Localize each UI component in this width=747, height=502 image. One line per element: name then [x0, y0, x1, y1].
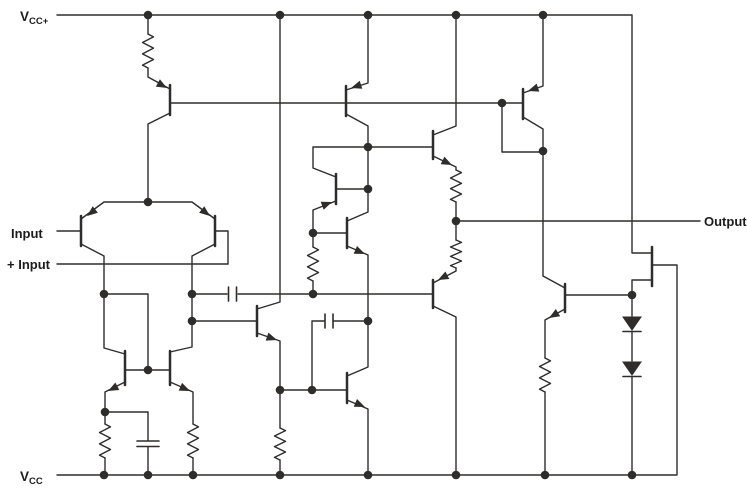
emitter-arrow: [354, 399, 365, 407]
emitter-arrow: [549, 309, 560, 318]
wire: [347, 246, 368, 376]
junction-dot: [364, 143, 373, 152]
op-amp-equivalent-schematic: VCC+Input+ InputOutputVCC: [0, 0, 747, 497]
wire: [543, 151, 565, 288]
resistor: [540, 358, 551, 392]
wire: [105, 412, 148, 441]
junction-dot: [628, 471, 637, 480]
resistor: [188, 424, 199, 458]
junction-dot: [308, 386, 317, 395]
wire: [257, 15, 280, 309]
wire: [433, 306, 456, 475]
junction-dot: [101, 408, 110, 417]
junction-dot: [144, 471, 153, 480]
output-label: Output: [704, 214, 747, 229]
junction-dot: [188, 290, 197, 299]
plus-input-label: + Input: [7, 257, 51, 272]
wire: [312, 321, 324, 390]
junction-dot: [364, 185, 373, 194]
junction-dot: [452, 217, 461, 226]
junction-dot: [276, 11, 285, 20]
junction-dot: [628, 291, 637, 300]
junction-dot: [144, 11, 153, 20]
emitter-arrow: [351, 81, 362, 89]
junction-dot: [309, 290, 318, 299]
resistor: [308, 247, 319, 281]
vcc-minus-label: VCC: [20, 469, 43, 487]
junction-dot: [364, 11, 373, 20]
junction-dot: [541, 471, 550, 480]
wire: [523, 117, 543, 151]
junction-dot: [452, 471, 461, 480]
vcc-plus-label: VCC+: [20, 9, 49, 27]
junction-dot: [276, 471, 285, 480]
resistor: [451, 170, 462, 202]
emitter-arrow: [354, 246, 365, 254]
junction-dot: [539, 11, 548, 20]
junction-dot: [364, 317, 373, 326]
junction-dot: [276, 386, 285, 395]
diode-triangle: [623, 317, 641, 330]
diode-triangle: [623, 362, 641, 375]
emitter-arrow: [321, 202, 332, 210]
emitter-arrow: [108, 383, 119, 392]
wire: [148, 113, 170, 202]
junction-dot: [189, 471, 198, 480]
wire: [104, 294, 125, 354]
wire: [523, 15, 543, 93]
junction-dot: [539, 147, 548, 156]
resistor: [451, 240, 462, 268]
junction-dot: [144, 366, 153, 375]
resistor: [100, 424, 111, 458]
wire: [215, 231, 228, 264]
wire: [433, 15, 456, 135]
wire: [346, 114, 368, 221]
emitter-arrow: [179, 383, 190, 391]
emitter-arrow: [438, 272, 449, 281]
wire: [346, 15, 368, 90]
junction-dot: [309, 229, 318, 238]
schematic-canvas: VCC+Input+ InputOutputVCC: [0, 0, 747, 497]
wire: [347, 400, 368, 475]
emitter-arrow: [528, 84, 539, 92]
input-label: Input: [11, 226, 43, 241]
junction-dot: [364, 471, 373, 480]
wire: [257, 333, 280, 390]
resistor: [275, 428, 286, 460]
emitter-arrow: [156, 79, 167, 88]
wire: [313, 147, 368, 177]
junction-dot: [188, 317, 197, 326]
emitter-arrow: [441, 157, 452, 165]
junction-dot: [452, 11, 461, 20]
resistor: [143, 34, 154, 68]
emitter-arrow: [266, 333, 277, 341]
junction-dot: [498, 99, 507, 108]
junction-dot: [144, 198, 153, 207]
junction-dot: [100, 471, 109, 480]
wire: [81, 244, 104, 294]
junction-dot: [100, 290, 109, 299]
